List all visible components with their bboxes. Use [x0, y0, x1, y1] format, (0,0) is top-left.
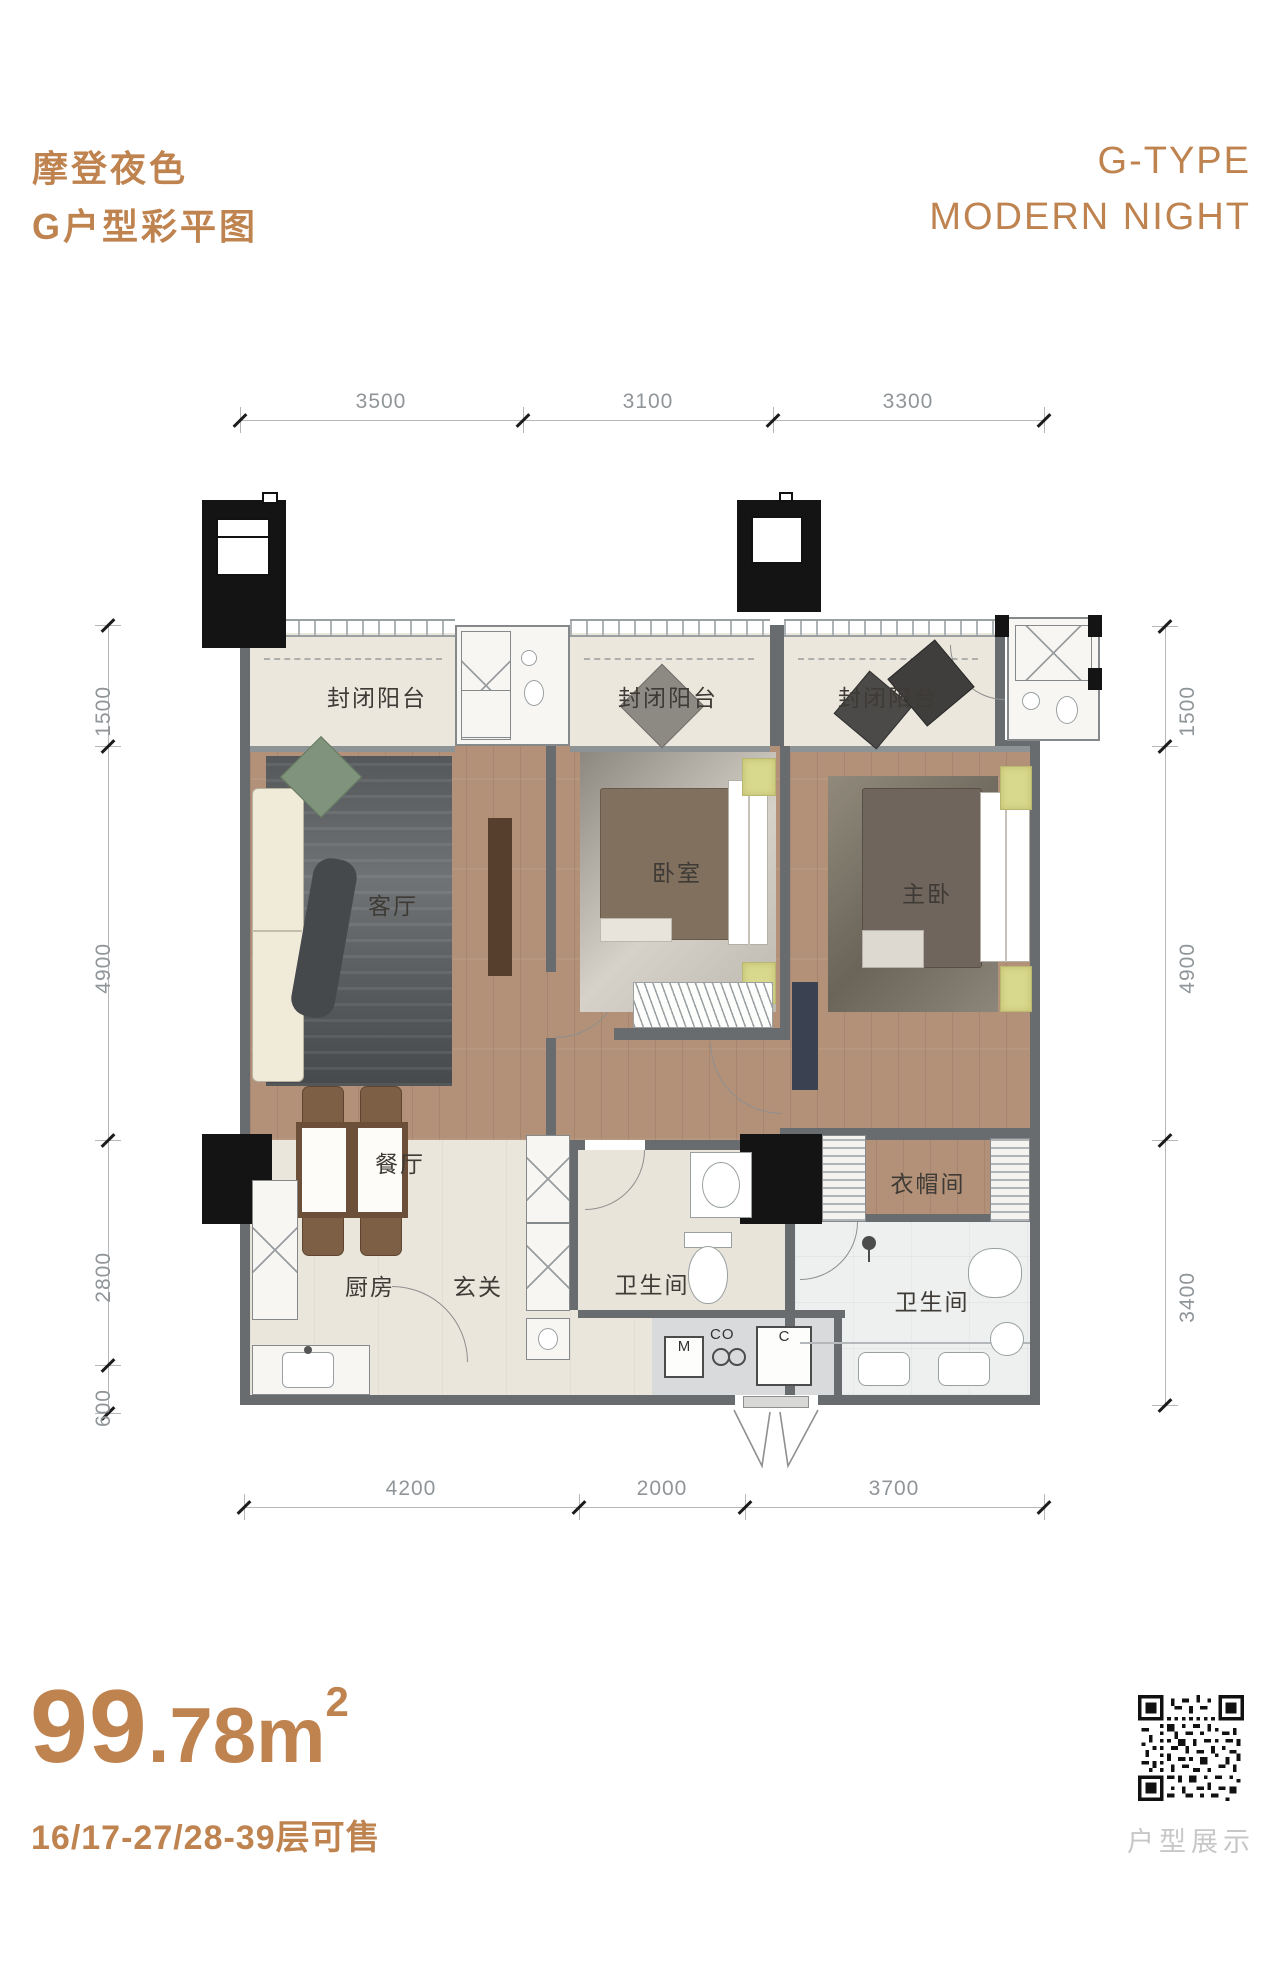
- bath2-sink: [938, 1352, 990, 1386]
- sofa: [252, 788, 304, 1082]
- dim-bottom-3: 3700: [869, 1477, 920, 1501]
- plant-stem: [868, 1248, 870, 1262]
- dim-left-2: 4900: [92, 943, 116, 994]
- room-label-balcony3: 封闭阳台: [838, 679, 938, 713]
- wall-right-outer: [1030, 740, 1040, 1405]
- window-hatch-mark: [264, 658, 442, 660]
- cloak-wardrobe: [990, 1138, 1030, 1222]
- room-label-balcony1: 封闭阳台: [327, 679, 427, 713]
- dim-left-3: 2800: [92, 1252, 116, 1303]
- bath1-basin: [702, 1162, 740, 1208]
- fridge-cabinet: [252, 1180, 298, 1320]
- shoe-cabinet: [526, 1135, 570, 1223]
- dim-line-top: [240, 420, 1044, 421]
- dim-right-2: 4900: [1176, 943, 1200, 994]
- area-rest: .78m: [148, 1691, 326, 1779]
- window-hatch-mark: [584, 658, 754, 660]
- shaft-notch: [262, 492, 278, 504]
- dim-right-1: 1500: [1176, 686, 1200, 737]
- dining-chair: [302, 1212, 344, 1256]
- appliance-c-label: C: [779, 1328, 790, 1345]
- dining-chair: [360, 1212, 402, 1256]
- tv-console: [488, 818, 512, 976]
- dim-top-1: 3500: [356, 390, 407, 414]
- window-sill: [784, 746, 1030, 752]
- column-block: [1088, 615, 1102, 637]
- cloak-wardrobe: [822, 1135, 866, 1222]
- room-label-balcony2: 封闭阳台: [618, 679, 718, 713]
- toilet: [968, 1248, 1022, 1298]
- shoe-cabinet: [526, 1223, 570, 1311]
- window-sill: [250, 746, 455, 752]
- bath2-sink: [858, 1352, 910, 1386]
- fixture-dot: [1022, 692, 1040, 710]
- wall-kitchen-bath1: [570, 1140, 578, 1310]
- column-block: [1088, 668, 1102, 690]
- unit-area: 99.78m2: [30, 1668, 349, 1787]
- wall-living-bedroom: [546, 1038, 556, 1140]
- bedroom-bed-fold: [600, 918, 672, 942]
- wall-nook-right: [834, 1318, 842, 1395]
- room-label-dining: 餐厅: [375, 1145, 425, 1179]
- page-title-en: G-TYPE: [1098, 140, 1251, 183]
- fixture-dot: [521, 650, 537, 666]
- dim-top-2: 3100: [623, 390, 674, 414]
- room-label-cloakroom: 衣帽间: [891, 1165, 966, 1199]
- area-main: 99: [30, 1669, 148, 1785]
- wall-left-outer: [240, 617, 250, 1405]
- floors-available: 16/17-27/28-39层可售: [31, 1810, 381, 1859]
- entry-door-slab: [743, 1396, 809, 1408]
- appliance-co-label: CO: [710, 1326, 735, 1343]
- room-label-master: 主卧: [902, 875, 952, 909]
- dim-left-1: 1500: [92, 686, 116, 737]
- wall-bottom-left: [240, 1395, 737, 1405]
- dim-bottom-2: 2000: [637, 1477, 688, 1501]
- shaft-window: [751, 516, 803, 564]
- shaft-notch: [779, 492, 793, 502]
- fixture-basin: [524, 680, 544, 706]
- master-wardrobe: [792, 982, 818, 1090]
- floorplan-page: 摩登夜色 G户型彩平图 G-TYPE MODERN NIGHT 3500 310…: [0, 0, 1284, 1980]
- hose-ring: [728, 1348, 746, 1366]
- dim-left-4: 600: [92, 1389, 116, 1427]
- wall-bath1-top: [570, 1140, 585, 1150]
- kitchen-sink: [282, 1352, 334, 1388]
- room-label-living: 客厅: [368, 887, 418, 921]
- qr-caption: 户型展示: [1127, 1820, 1255, 1859]
- wall-nook-top: [616, 1310, 842, 1318]
- room-label-bath2: 卫生间: [895, 1283, 970, 1317]
- room-label-bath1: 卫生间: [615, 1266, 690, 1300]
- nightstand-lamp: [1000, 966, 1032, 1012]
- area-superscript: 2: [325, 1678, 348, 1725]
- column-block: [995, 615, 1009, 637]
- wall-bottom-right: [818, 1395, 1040, 1405]
- page-subtitle: G户型彩平图: [32, 198, 258, 250]
- sofa-cushion-line: [252, 930, 302, 932]
- dining-table: [296, 1122, 352, 1218]
- dim-top-3: 3300: [883, 390, 934, 414]
- qr-code: [1138, 1695, 1244, 1801]
- master-bed-fold: [862, 930, 924, 968]
- page-subtitle-en: MODERN NIGHT: [929, 196, 1251, 239]
- wall-bedroom-bottom: [614, 1028, 790, 1040]
- wall-bedroom-master: [780, 746, 790, 1040]
- shaft-window-bar: [216, 536, 270, 538]
- utility-washer: [461, 690, 511, 738]
- pillow-line: [748, 780, 750, 945]
- equipment-cabinet: [1015, 625, 1092, 681]
- balcony3-window: [784, 619, 995, 637]
- nightstand-lamp: [742, 758, 776, 796]
- column-cloakroom: [740, 1134, 822, 1224]
- round-stool: [990, 1322, 1024, 1356]
- faucet-dot: [304, 1346, 312, 1354]
- balcony2-window: [570, 619, 770, 637]
- page-title: 摩登夜色: [32, 140, 188, 192]
- room-label-entry: 玄关: [453, 1268, 503, 1302]
- radiator-grille: [633, 982, 773, 1028]
- dim-right-3: 3400: [1176, 1272, 1200, 1323]
- nightstand-lamp: [1000, 766, 1032, 810]
- fixture-dot: [538, 1328, 558, 1350]
- fixture-basin: [1056, 696, 1078, 724]
- wall-living-bedroom: [546, 746, 556, 972]
- shaft-window: [216, 518, 270, 576]
- dim-bottom-1: 4200: [386, 1477, 437, 1501]
- wall-between-balcony23: [770, 625, 784, 746]
- appliance-m-label: M: [678, 1338, 691, 1355]
- appliance-c: C: [756, 1326, 812, 1386]
- pillow-line: [1005, 792, 1007, 962]
- appliance-m: M: [664, 1336, 704, 1378]
- entry-door-swing-icon: [726, 1408, 826, 1474]
- dim-line-bottom: [244, 1507, 1044, 1508]
- room-label-bedroom: 卧室: [652, 854, 702, 888]
- room-label-kitchen: 厨房: [345, 1268, 395, 1302]
- toilet: [688, 1246, 728, 1304]
